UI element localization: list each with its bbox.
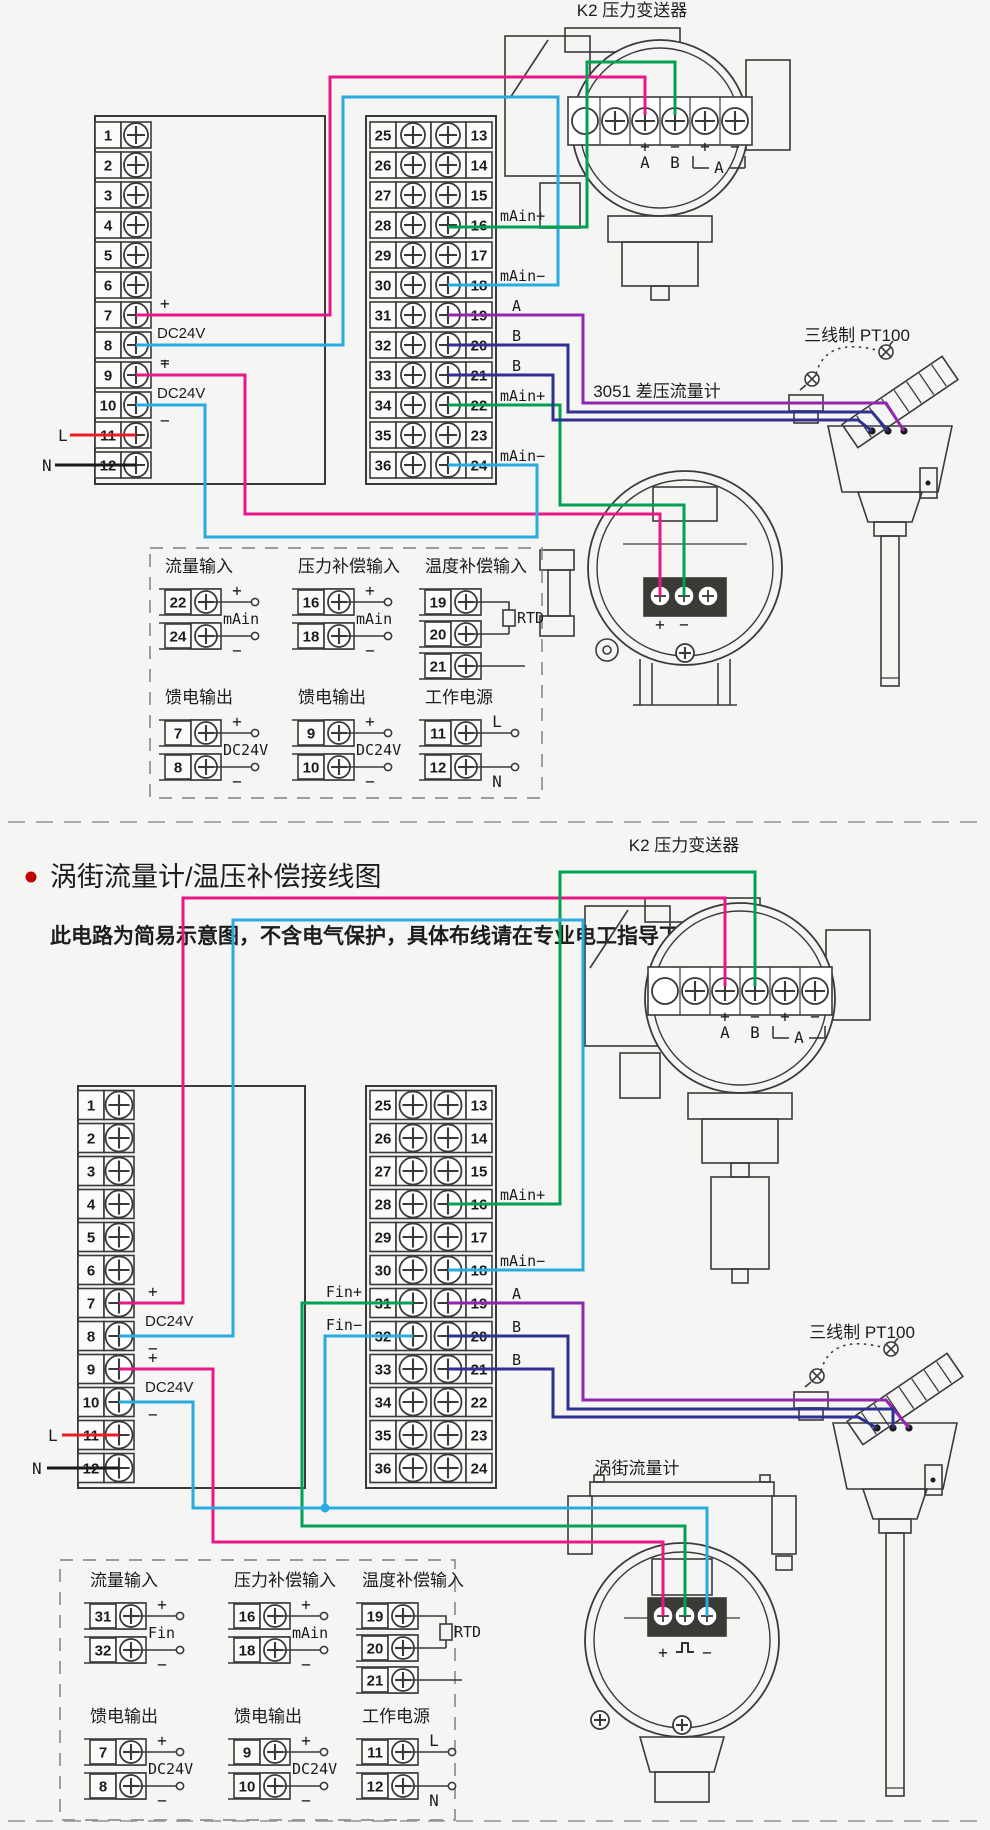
terminal-number: 6 [104,278,112,295]
legend-terminal-number: 12 [367,1779,384,1796]
terminal-number: 9 [104,368,112,385]
k2-channel-label: A [640,153,650,172]
legend-group-title: 压力补偿输入 [234,1571,336,1590]
pt100-title: 三线制 PT100 [804,326,910,345]
legend-sign: − [157,1655,167,1674]
shape [590,1482,774,1496]
k2-bracket-label: A [714,158,724,177]
terminal-number: 35 [375,1428,392,1445]
legend-group-title: 流量输入 [165,557,233,576]
vortex-flow-meter: +−涡街流量计 [568,1459,796,1802]
legend-group-title: 馈电输出 [298,688,366,707]
legend-terminal-number: 24 [170,629,187,646]
legend-sign: L [492,712,502,731]
legend-terminal-number: 19 [367,1609,384,1626]
top-wiring-diagram: 1234567891011122513261427152816291730183… [42,1,958,798]
shape [732,1269,748,1283]
legend-mid-label: mAin [223,610,259,628]
legend-terminal-number: 12 [430,760,447,777]
legend-group-title: 馈电输出 [165,688,233,707]
terminal-number: 17 [471,248,488,265]
terminal-number: 14 [471,1131,488,1148]
signal-label-19: A [512,297,521,315]
legend-terminal-number: 16 [239,1609,256,1626]
terminal-number: 4 [87,1197,96,1214]
shape [651,286,669,300]
wire-rtd-b-20 [448,1336,893,1428]
shape [760,1475,770,1482]
power-annotation: DC24V [157,385,205,402]
terminal-number: 1 [87,1098,95,1115]
shape [879,1519,911,1533]
terminal-number: 31 [375,308,392,325]
legend-group-title: 温度补偿输入 [425,557,527,576]
k2-channel-label: A [720,1023,730,1042]
legend-sign: − [365,641,375,660]
shape [702,1119,778,1163]
bullet-icon [26,872,37,883]
legend-sign: N [429,1791,439,1810]
legend-sign: + [301,1595,311,1614]
terminal-number: 33 [375,368,392,385]
legend-group: 流量输入3132+−Fin [84,1571,184,1674]
legend-group: 压力补偿输入1618+−mAin [228,1571,336,1674]
legend-terminal-number: 32 [95,1643,112,1660]
legend-terminal-number: 19 [430,595,447,612]
legend-terminal-number: 9 [307,726,315,743]
terminal-number: 2 [104,158,112,175]
flow-terminal-sign: − [679,615,689,634]
shape [440,1624,452,1640]
line-label: L [48,1426,58,1445]
signal-label-21: B [512,1351,521,1369]
legend-group-title: 馈电输出 [90,1707,158,1726]
terminal-number: 13 [471,128,488,145]
power-annotation: − [160,411,170,430]
legend-sign: N [492,772,502,791]
legend-sign: + [365,712,375,731]
shape [548,570,570,616]
legend-terminal-number: 18 [239,1643,256,1660]
bottom-wiring-diagram: 1234567891011122513261427152816291730183… [32,836,963,1820]
legend-terminal-number: 7 [99,1745,107,1762]
legend-terminal-number: 21 [430,659,447,676]
legend-sign: − [301,1655,311,1674]
legend-group-title: 馈电输出 [234,1707,302,1726]
legend-group: 馈电输出910+−DC24V [292,688,401,791]
terminal-number: 28 [375,218,392,235]
shape [881,536,899,686]
legend-group-title: 流量输入 [90,1571,158,1590]
signal-label-18: mAin− [500,1252,545,1270]
k2-title: K2 压力变送器 [629,836,740,855]
legend-sign: − [157,1791,167,1810]
legend-group: 温度补偿输入192021RTD [356,1571,481,1693]
legend-sign: + [232,581,242,600]
legend-group: 馈电输出78+−DC24V [159,688,268,791]
legend-terminal-number: 20 [367,1641,384,1658]
terminal-number: 25 [375,128,392,145]
legend-box-top: 流量输入2224+−mAin压力补偿输入1618+−mAin温度补偿输入1920… [150,548,544,798]
terminal-number: 36 [375,458,392,475]
legend-group: 温度补偿输入192021RTD [419,557,544,679]
dotted-cable-arc [816,347,880,374]
shape [886,1533,904,1796]
k2-pressure-transmitter: +−+−ABAK2 压力变送器 [585,836,870,1283]
terminal-number: 10 [100,398,117,415]
shape [620,1053,660,1098]
shape [655,1772,709,1802]
signal-label-24: mAin− [500,447,545,465]
shape [874,522,906,536]
terminal-number: 8 [104,338,112,355]
legend-terminal-number: 31 [95,1609,112,1626]
terminal-number: 14 [471,158,488,175]
shape [731,1163,749,1177]
vortex-flow-meter-title: 涡街流量计 [595,1459,680,1478]
signal-label-18: mAin− [500,267,545,285]
terminal-number: 9 [87,1362,95,1379]
legend-sign: + [157,1731,167,1750]
legend-mid-label: Fin [148,1624,175,1642]
terminal-number: 29 [375,1230,392,1247]
terminal-number: 5 [87,1230,95,1247]
legend-mid-label: DC24V [292,1760,337,1778]
k2-terminal-sign: − [730,137,740,156]
shape [503,610,515,626]
signal-label-20: B [512,1318,521,1336]
terminal-number: 1 [104,128,112,145]
legend-terminal-number: 22 [170,595,187,612]
signal-label-19: A [512,1285,521,1303]
terminal-number: 22 [471,1395,488,1412]
signal-label-16: mAin+ [500,207,545,225]
legend-mid-label: DC24V [223,741,268,759]
flow-terminal-sign: − [702,1643,712,1662]
legend-terminal-number: 16 [303,595,320,612]
input-label-32: Fin− [326,1316,362,1334]
terminal-number: 23 [471,1428,488,1445]
terminal-number: 30 [375,1263,392,1280]
left-terminal-strip-top: 123456789101112 [95,122,151,478]
legend-group: 压力补偿输入1618+−mAin [292,557,400,660]
terminal-number: 23 [471,428,488,445]
left-terminal-strip-bottom: 123456789101112 [78,1091,134,1483]
terminal-number: 15 [471,188,488,205]
legend-sign: − [365,772,375,791]
shape [688,1093,792,1119]
power-annotation: + [148,1282,158,1301]
terminal-number: 8 [87,1329,95,1346]
legend-group: 馈电输出78+−DC24V [84,1707,193,1810]
signal-label-21: B [512,357,521,375]
legend-group-title: 工作电源 [362,1707,430,1726]
section-subtitle: 此电路为简易示意图，不含电气保护，具体布线请在专业电工指导下进行； [50,924,743,948]
flow-terminal-sign: + [658,1643,668,1662]
legend-terminal-number: 10 [303,760,320,777]
terminal-number: 32 [375,338,392,355]
section-title: 涡街流量计/温压补偿接线图 [50,862,382,892]
input-label-31: Fin+ [326,1283,362,1301]
terminal-number: 26 [375,1131,392,1148]
power-annotation: DC24V [157,325,205,342]
legend-group: 流量输入2224+−mAin [159,557,259,660]
legend-sign: − [232,641,242,660]
legend-terminal-number: 20 [430,627,447,644]
pt100-sensor: 三线制 PT100 [794,1323,963,1796]
terminal-number: 33 [375,1362,392,1379]
wire-main-minus-18-to-dc24v [136,97,558,345]
power-annotation: − [148,1405,158,1424]
k2-channel-label: B [670,153,680,172]
k2-title: K2 压力变送器 [577,1,688,20]
rtd-label: RTD [517,609,544,627]
wire-main-minus-18-to-dc24v [119,920,583,1336]
k2-channel-label: B [750,1023,760,1042]
neutral-label: N [42,456,52,475]
pt100-sensor: 三线制 PT100 [789,326,958,686]
terminal-number: 27 [375,188,392,205]
right-terminal-strip-top: 2513261427152816291730183119322033213422… [370,122,492,478]
terminal-number: 28 [375,1197,392,1214]
legend-terminal-number: 10 [239,1779,256,1796]
shape [772,1496,796,1554]
terminal-number: 5 [104,248,112,265]
legend-sign: + [365,581,375,600]
wiring-diagram-canvas: 1234567891011122513261427152816291730183… [0,0,990,1830]
legend-group: 馈电输出910+−DC24V [228,1707,337,1810]
shape [711,1177,769,1269]
power-annotation: DC24V [145,1313,193,1330]
legend-mid-label: mAin [292,1624,328,1642]
terminal-number: 3 [87,1164,95,1181]
shape [540,550,574,570]
k2-bracket-label: A [794,1028,804,1047]
legend-terminal-number: 21 [367,1673,384,1690]
terminal-number: 30 [375,278,392,295]
legend-group-title: 工作电源 [425,688,493,707]
k2-pressure-transmitter: +−+−ABAK2 压力变送器 [505,1,790,300]
neutral-label: N [32,1459,42,1478]
legend-sign: − [232,772,242,791]
line-label: L [58,426,68,445]
terminal-number: 24 [471,1461,488,1478]
legend-sign: L [429,1731,439,1750]
terminal-number: 25 [375,1098,392,1115]
shape [540,183,580,228]
legend-group-title: 压力补偿输入 [298,557,400,576]
legend-terminal-number: 11 [367,1745,383,1762]
legend-sign: + [157,1595,167,1614]
power-annotation: + [160,294,170,313]
dp-flow-meter-title: 3051 差压流量计 [593,382,721,401]
terminal-number: 35 [375,428,392,445]
terminal-number: 7 [87,1296,95,1313]
signal-label-16: mAin+ [500,1186,545,1204]
terminal-number: 27 [375,1164,392,1181]
legend-sign: + [232,712,242,731]
terminal-number: 34 [375,1395,392,1412]
k2-terminal-sign: + [700,137,710,156]
legend-box-bottom: 流量输入3132+−Fin压力补偿输入1618+−mAin温度补偿输入19202… [60,1560,481,1820]
terminal-number: 36 [375,1461,392,1478]
flow-terminal-sign: + [655,615,665,634]
terminal-number: 26 [375,158,392,175]
legend-terminal-number: 7 [174,726,182,743]
section-heading: 涡街流量计/温压补偿接线图此电路为简易示意图，不含电气保护，具体布线请在专业电工… [26,862,744,948]
legend-sign: − [301,1791,311,1810]
legend-terminal-number: 11 [430,726,446,743]
power-annotation: + [148,1348,158,1367]
terminal-number: 4 [104,218,113,235]
terminal-number: 13 [471,1098,488,1115]
signal-label-20: B [512,327,521,345]
terminal-number: 34 [375,398,392,415]
legend-mid-label: DC24V [356,741,401,759]
wiring-diagram-page: 1234567891011122513261427152816291730183… [0,0,990,1830]
shape [608,216,712,242]
terminal-number: 15 [471,1164,488,1181]
pt100-title: 三线制 PT100 [809,1323,915,1342]
terminal-number: 3 [104,188,112,205]
rtd-label: RTD [454,1623,481,1641]
terminal-number: 29 [375,248,392,265]
k2-terminal-sign: + [780,1007,790,1026]
legend-mid-label: DC24V [148,1760,193,1778]
dotted-cable-arc [821,1344,885,1371]
legend-sign: + [301,1731,311,1750]
legend-mid-label: mAin [356,610,392,628]
legend-terminal-number: 18 [303,629,320,646]
shape [776,1556,792,1570]
legend-group: 工作电源1112LN [419,688,519,791]
terminal-number: 17 [471,1230,488,1247]
k2-terminal-sign: − [810,1007,820,1026]
power-annotation: DC24V [145,1379,193,1396]
terminal-number: 2 [87,1131,95,1148]
terminal-number: 7 [104,308,112,325]
power-annotation: + [160,354,170,373]
legend-terminal-number: 8 [99,1779,107,1796]
right-terminal-strip-bottom: 2513261427152816291730183119322033213422… [370,1091,492,1483]
terminal-number: 6 [87,1263,95,1280]
legend-group-title: 温度补偿输入 [362,1571,464,1590]
signal-label-22: mAin+ [500,387,545,405]
shape [622,242,698,286]
legend-terminal-number: 9 [243,1745,251,1762]
shape [540,616,574,636]
legend-group: 工作电源1112LN [356,1707,456,1810]
terminal-number: 10 [83,1395,100,1412]
legend-terminal-number: 8 [174,760,182,777]
